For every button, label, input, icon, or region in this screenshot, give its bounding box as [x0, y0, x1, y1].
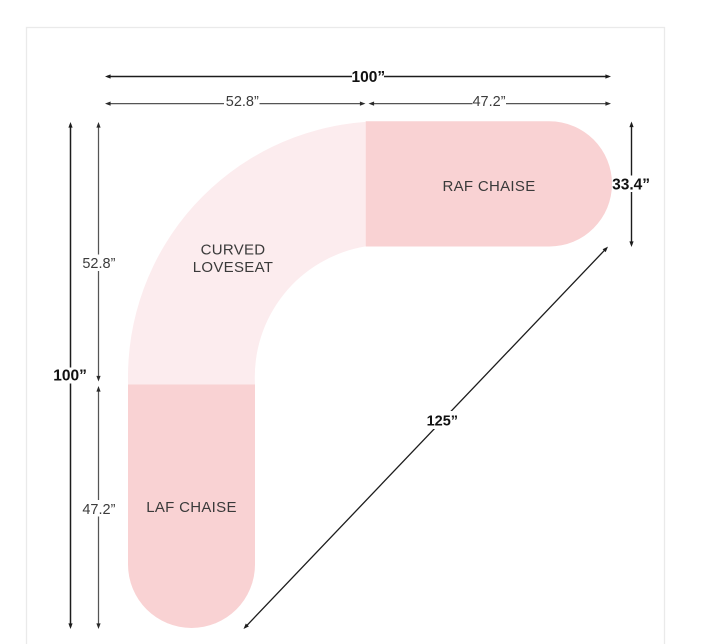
svg-text:LAF CHAISE: LAF CHAISE — [146, 499, 237, 516]
svg-text:33.4”: 33.4” — [612, 176, 650, 193]
svg-text:CURVED: CURVED — [201, 242, 266, 259]
svg-text:125”: 125” — [427, 414, 458, 430]
svg-text:47.2”: 47.2” — [472, 94, 505, 110]
svg-text:52.8”: 52.8” — [82, 256, 115, 272]
svg-text:100”: 100” — [351, 69, 385, 86]
svg-text:RAF CHAISE: RAF CHAISE — [442, 178, 535, 195]
svg-text:52.8”: 52.8” — [226, 94, 259, 110]
svg-text:100”: 100” — [53, 368, 87, 385]
svg-text:47.2”: 47.2” — [82, 502, 115, 518]
svg-text:LOVESEAT: LOVESEAT — [193, 259, 273, 276]
